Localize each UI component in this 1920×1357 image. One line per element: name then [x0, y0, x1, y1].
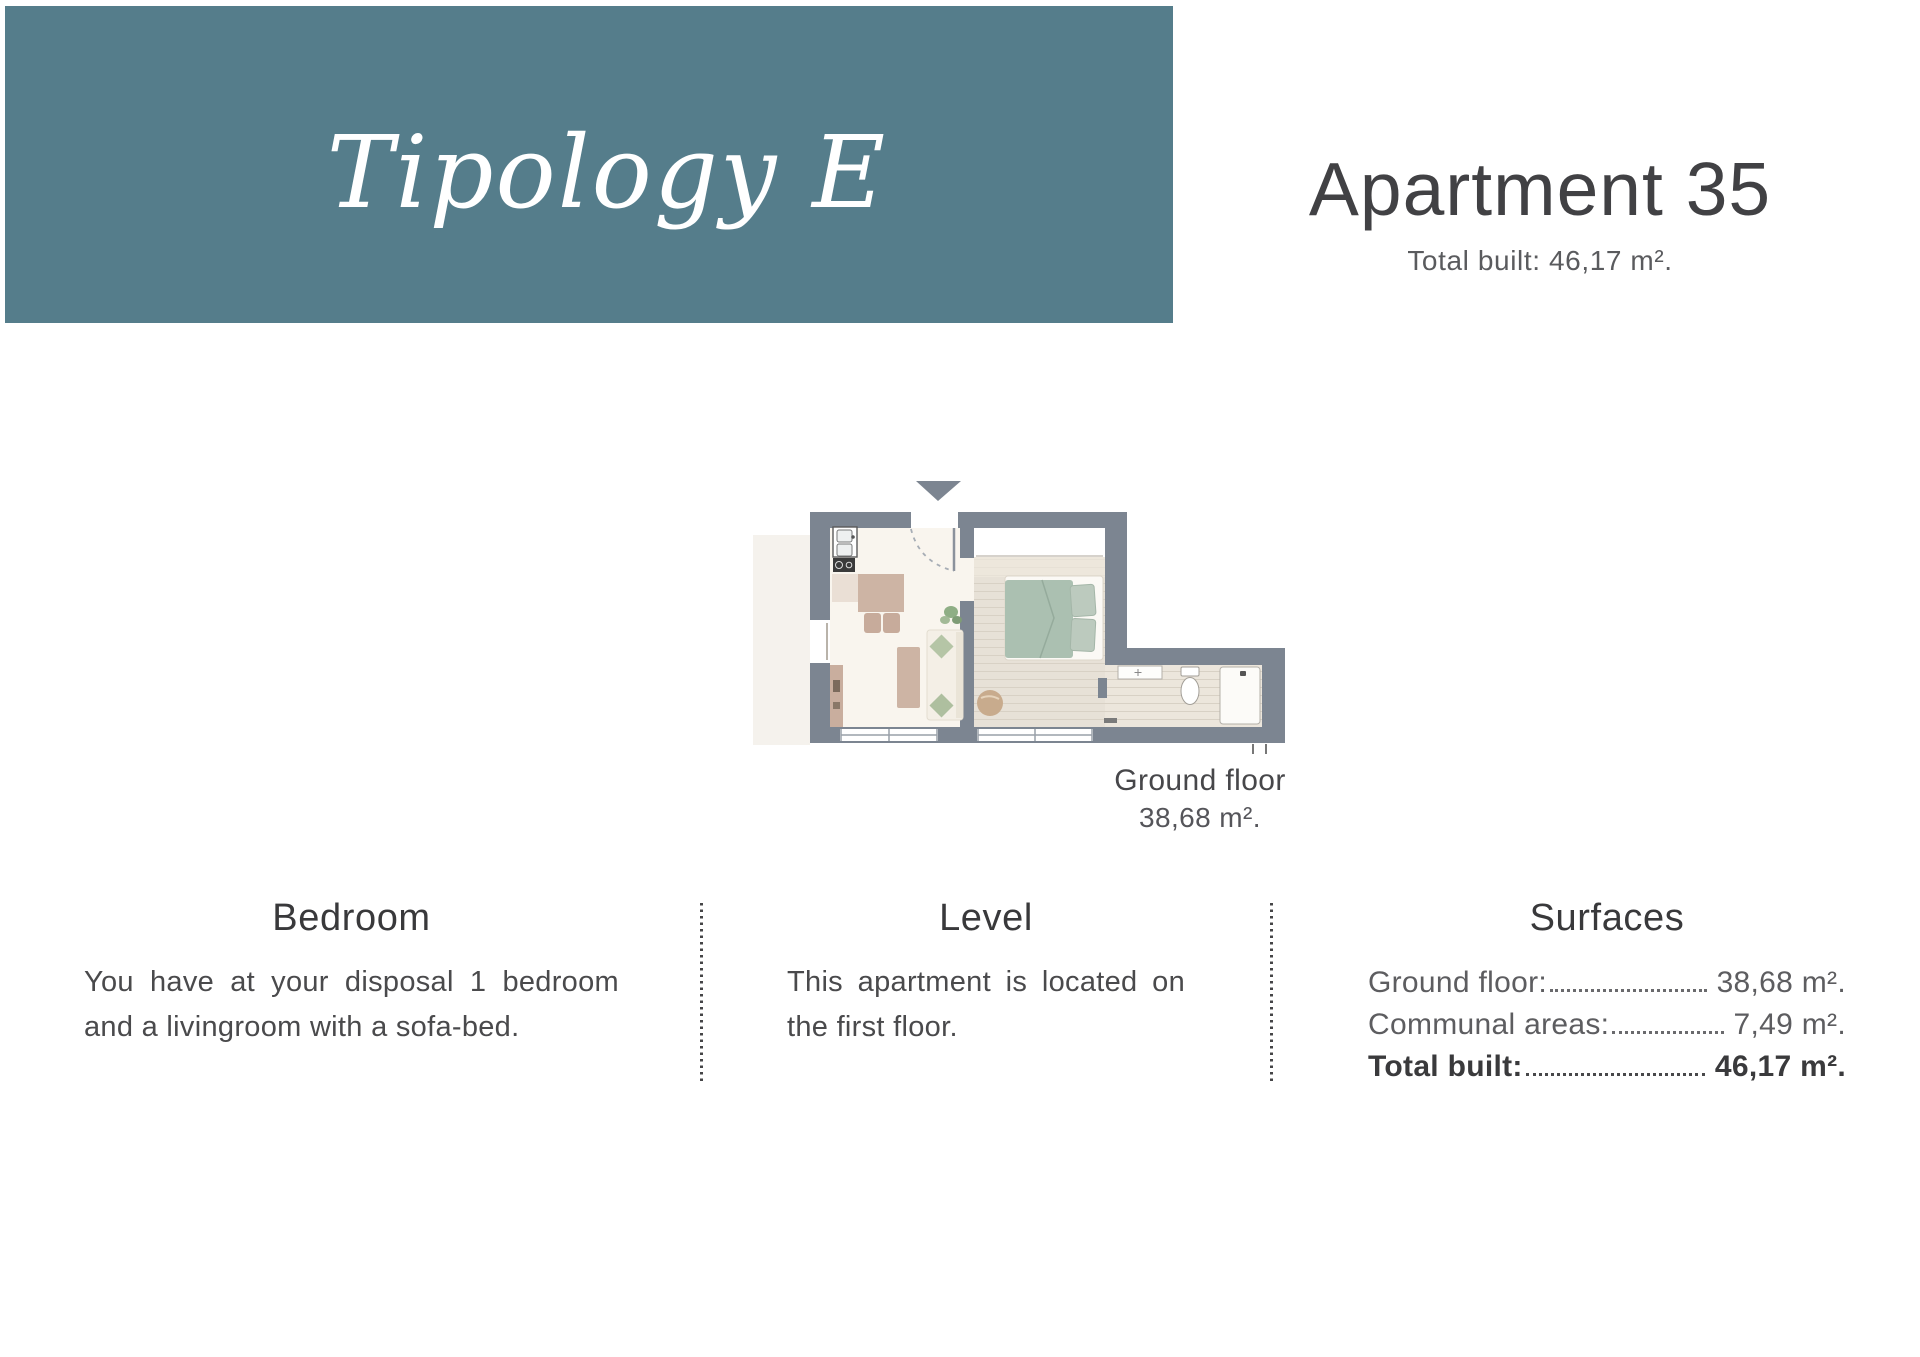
- level-column: Level This apartment is located on the f…: [787, 896, 1185, 1050]
- radiator-mark: [1104, 718, 1117, 723]
- typology-banner: Tipology E: [5, 6, 1173, 323]
- dotted-divider: [1270, 903, 1273, 1081]
- shower-tray: [1220, 667, 1260, 724]
- plan-caption-title: Ground floor: [1040, 764, 1360, 798]
- bed: [1005, 576, 1103, 660]
- leader-dots: [1550, 989, 1707, 992]
- surface-label: Total built:: [1368, 1046, 1523, 1088]
- surfaces-table: Ground floor: 38,68 m². Communal areas: …: [1368, 962, 1846, 1088]
- coffee-table: [897, 647, 920, 708]
- total-built-subtitle: Total built: 46,17 m².: [1150, 245, 1920, 277]
- bedroom-heading: Bedroom: [84, 896, 619, 942]
- page-title: Apartment 35: [1150, 150, 1920, 229]
- sofa: [927, 630, 963, 720]
- surfaces-heading: Surfaces: [1368, 896, 1846, 942]
- bedroom-column: Bedroom You have at your disposal 1 bedr…: [84, 896, 619, 1050]
- level-heading: Level: [787, 896, 1185, 942]
- surfaces-column: Surfaces Ground floor: 38,68 m². Communa…: [1368, 896, 1846, 1088]
- entrance-arrow-icon: [916, 481, 961, 501]
- surface-label: Ground floor:: [1368, 962, 1547, 1004]
- surface-row-total-built: Total built: 46,17 m².: [1368, 1046, 1846, 1088]
- plan-caption: Ground floor 38,68 m².: [1040, 764, 1360, 834]
- dining-table: [858, 574, 904, 633]
- surface-value: 46,17 m².: [1715, 1046, 1846, 1088]
- bedroom-window-recess: [974, 528, 1105, 557]
- cooktop: [833, 558, 855, 572]
- kitchen-sink: [833, 527, 857, 557]
- floor-plan: [745, 470, 1305, 770]
- typology-title: Tipology E: [327, 123, 887, 223]
- surface-row-ground-floor: Ground floor: 38,68 m².: [1368, 962, 1846, 1004]
- pouf: [977, 690, 1003, 716]
- surface-row-communal-areas: Communal areas: 7,49 m².: [1368, 1004, 1846, 1046]
- entrance-door-opening: [911, 512, 958, 528]
- surface-value: 38,68 m².: [1717, 962, 1846, 1004]
- surface-value: 7,49 m².: [1734, 1004, 1846, 1046]
- interior-door-opening: [810, 620, 830, 663]
- dotted-divider: [700, 903, 703, 1081]
- console-sideboard: [830, 665, 843, 727]
- leader-dots: [1526, 1073, 1705, 1076]
- kitchen-mat: [832, 574, 858, 602]
- bathroom-vanity: [1118, 666, 1162, 679]
- neighbor-area: [753, 535, 810, 745]
- apartment-header: Apartment 35 Total built: 46,17 m².: [1150, 150, 1920, 277]
- dimension-ticks: [1253, 744, 1266, 754]
- bedroom-description: You have at your disposal 1 bedroom and …: [84, 960, 619, 1050]
- leader-dots: [1612, 1031, 1723, 1034]
- brochure-page: Tipology E Apartment 35 Total built: 46,…: [0, 0, 1920, 1357]
- toilet: [1181, 667, 1199, 705]
- level-description: This apartment is located on the first f…: [787, 960, 1185, 1050]
- plan-caption-area: 38,68 m².: [1040, 802, 1360, 834]
- surface-label: Communal areas:: [1368, 1004, 1609, 1046]
